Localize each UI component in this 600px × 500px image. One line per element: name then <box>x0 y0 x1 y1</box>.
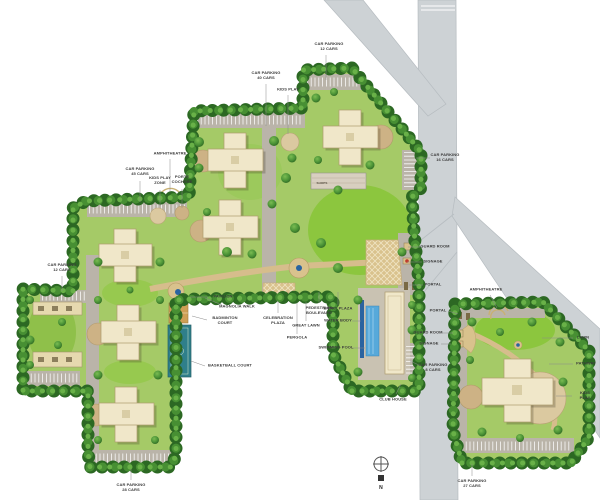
site-plan: CAR PARKING 12 CARS CAR PARKING 40 CARS … <box>0 0 600 500</box>
kids-play-area-north <box>281 133 299 151</box>
entry-plaza-area <box>366 240 402 285</box>
north-compass <box>373 456 389 481</box>
swimming-pool-area <box>366 306 379 356</box>
water-body-area <box>360 300 364 358</box>
site-plan-canvas <box>0 0 600 500</box>
kids-play-zone-area <box>150 208 166 224</box>
